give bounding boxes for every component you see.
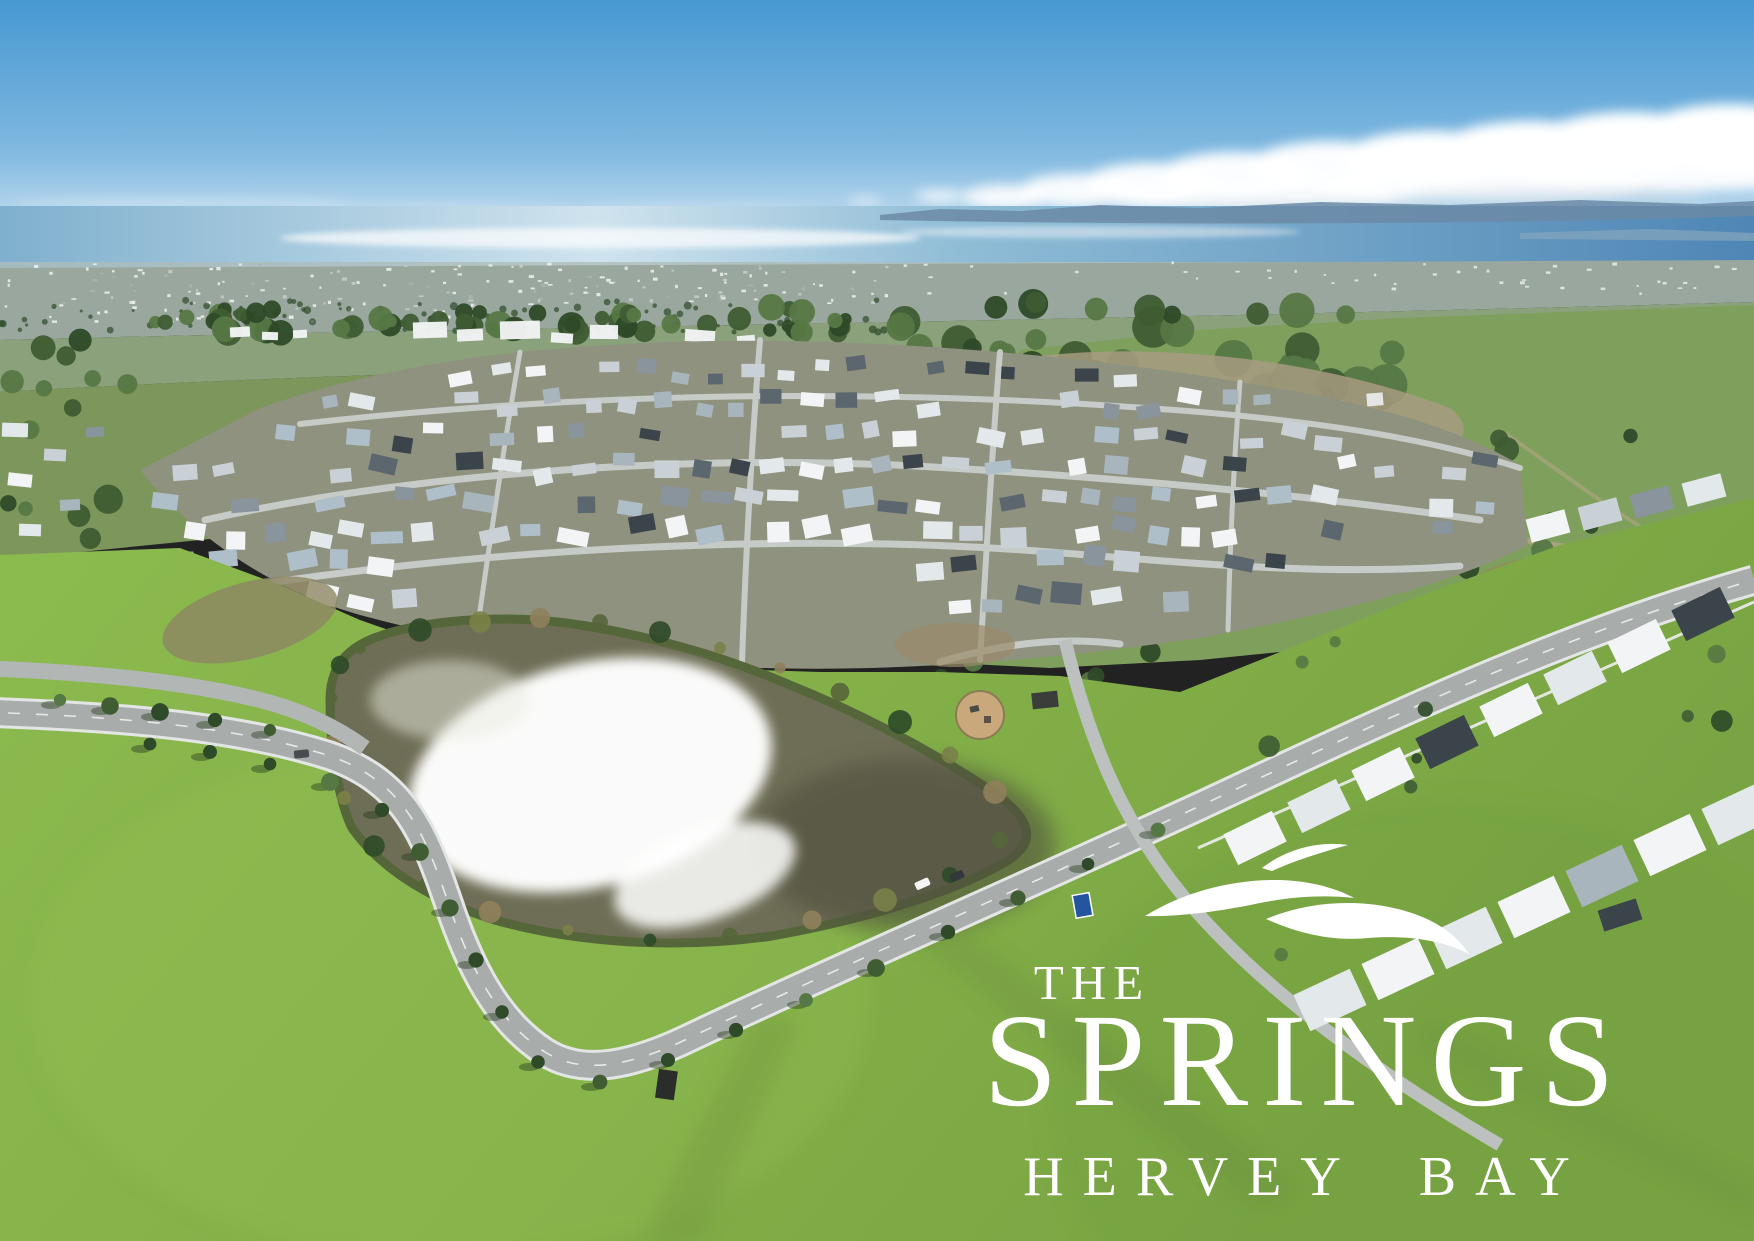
dirt-patch [895,623,1015,667]
estate-sign-blue [1072,893,1093,919]
park-shelter [1031,691,1059,710]
aerial-photo-stage: THE SPRINGS HERVEY BAY [0,0,1754,1241]
sun-glint-ocean [280,228,920,248]
estate-sign-dark [655,1069,678,1100]
car-grey [294,749,310,759]
aerial-photo-scene [0,0,1754,1241]
